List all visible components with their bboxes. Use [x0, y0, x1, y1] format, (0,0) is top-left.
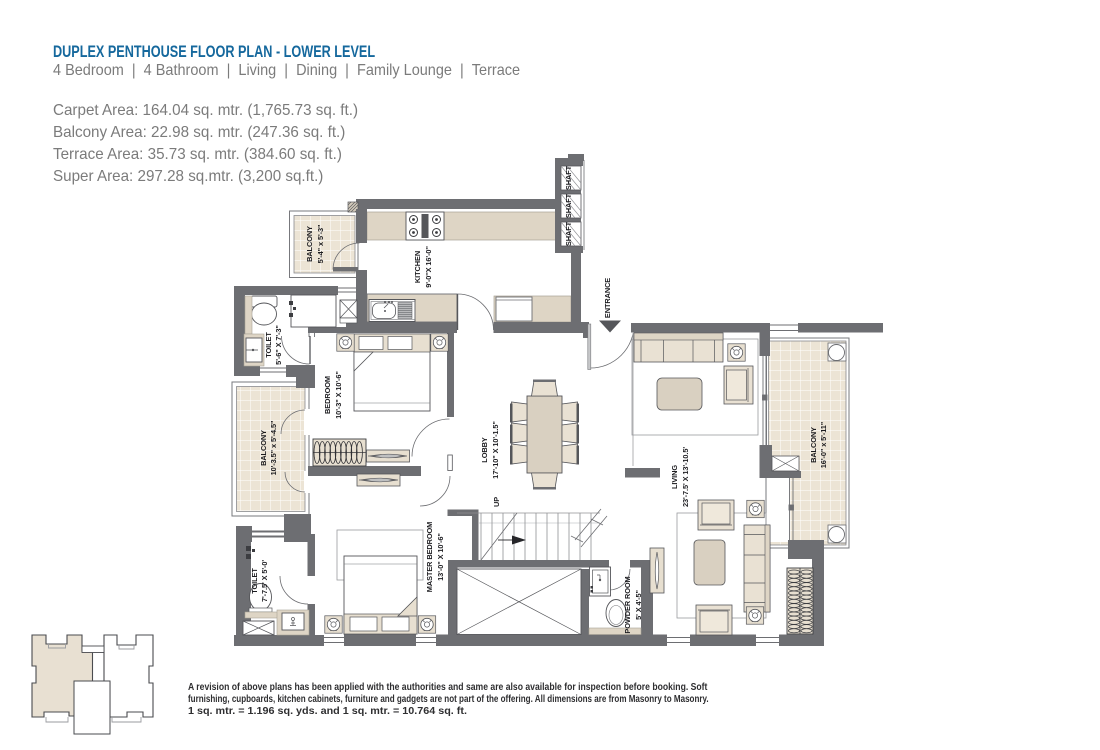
- svg-text:5'-4" x 5'-3": 5'-4" x 5'-3": [316, 224, 325, 263]
- svg-text:SHAFT: SHAFT: [564, 165, 573, 190]
- svg-text:BALCONY: BALCONY: [305, 226, 314, 262]
- svg-text:LIVING: LIVING: [670, 465, 679, 489]
- svg-text:10'-3.5" x 5'-4.5": 10'-3.5" x 5'-4.5": [269, 420, 278, 475]
- svg-text:23'-7.5' X 13'-10.5': 23'-7.5' X 13'-10.5': [681, 447, 690, 507]
- svg-text:10'-3" X 10'-6": 10'-3" X 10'-6": [334, 371, 343, 419]
- svg-text:SHAFT: SHAFT: [564, 221, 573, 246]
- svg-text:LOBBY: LOBBY: [480, 437, 489, 463]
- svg-text:9'-0''X 16'-0'': 9'-0''X 16'-0'': [424, 246, 433, 288]
- svg-text:BALCONY: BALCONY: [259, 430, 268, 466]
- svg-text:BALCONY: BALCONY: [809, 427, 818, 463]
- svg-text:POWDER ROOM: POWDER ROOM: [623, 576, 632, 633]
- svg-text:BEDROOM: BEDROOM: [323, 376, 332, 414]
- svg-text:7'-7.5' X 5'-0': 7'-7.5' X 5'-0': [260, 560, 269, 602]
- svg-text:16'-0" x 5'-11": 16'-0" x 5'-11": [819, 421, 828, 468]
- svg-text:UP: UP: [492, 497, 501, 507]
- svg-text:13'-0" X 10'-6": 13'-0" X 10'-6": [436, 533, 445, 581]
- svg-text:17'-10" X 10'-1.5": 17'-10" X 10'-1.5": [491, 421, 500, 479]
- svg-text:ENTRANCE: ENTRANCE: [603, 278, 612, 318]
- svg-text:TOILET: TOILET: [250, 568, 259, 594]
- svg-text:TOILET: TOILET: [264, 332, 273, 358]
- svg-text:MASTER BEDROOM: MASTER BEDROOM: [425, 522, 434, 592]
- svg-text:SHAFT: SHAFT: [564, 193, 573, 218]
- svg-text:5'-6" X 7'-3": 5'-6" X 7'-3": [274, 325, 283, 365]
- svg-text:KITCHEN: KITCHEN: [413, 251, 422, 283]
- svg-text:5' X 4'-5": 5' X 4'-5": [634, 589, 643, 619]
